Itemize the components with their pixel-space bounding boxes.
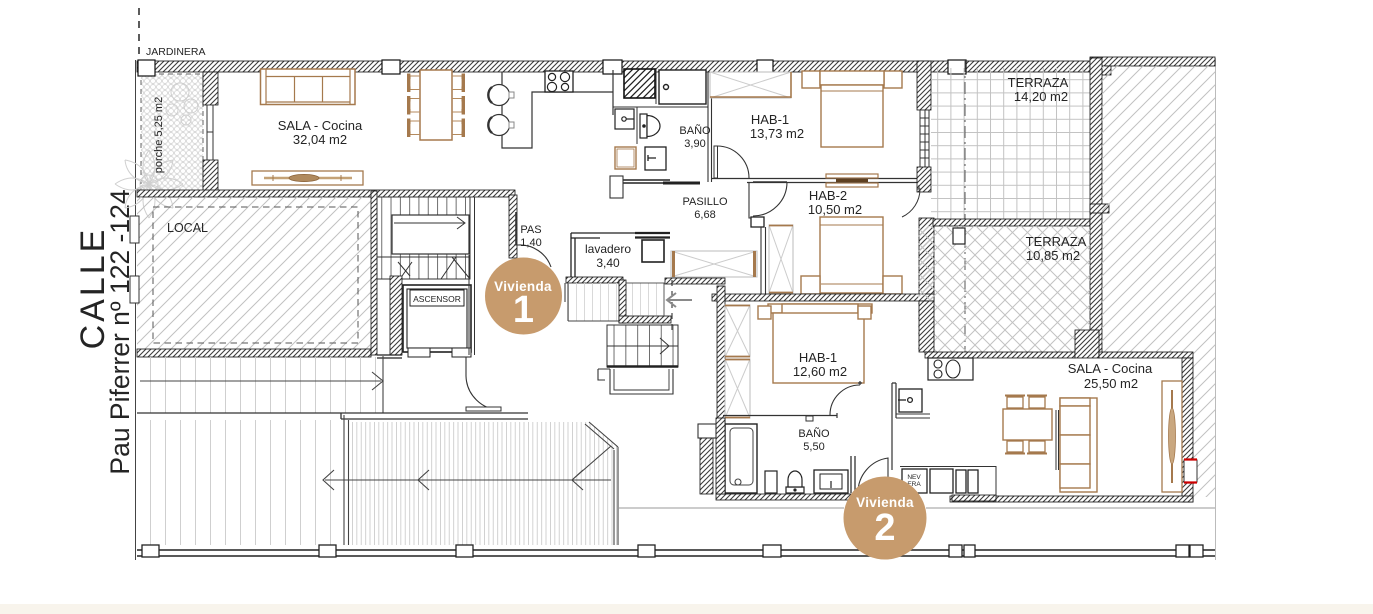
svg-text:14,20 m2: 14,20 m2 <box>1014 89 1068 104</box>
svg-text:32,04 m2: 32,04 m2 <box>293 132 347 147</box>
svg-text:porche 5,25 m2: porche 5,25 m2 <box>153 97 165 173</box>
svg-text:NEV: NEV <box>907 474 921 481</box>
svg-text:PAS: PAS <box>520 224 541 236</box>
svg-text:SALA - Cocina: SALA - Cocina <box>278 118 363 133</box>
svg-text:10,50 m2: 10,50 m2 <box>808 202 862 217</box>
svg-text:1,40: 1,40 <box>520 237 541 249</box>
svg-text:10,85 m2: 10,85 m2 <box>1026 248 1080 263</box>
svg-text:13,73 m2: 13,73 m2 <box>750 126 804 141</box>
svg-text:PASILLO: PASILLO <box>682 196 727 208</box>
svg-text:3,40: 3,40 <box>596 256 620 270</box>
svg-text:TERRAZA: TERRAZA <box>1026 234 1087 249</box>
svg-text:BAÑO: BAÑO <box>798 427 830 440</box>
svg-text:1: 1 <box>513 289 534 331</box>
svg-text:ASCENSOR: ASCENSOR <box>413 294 461 304</box>
svg-text:5,50: 5,50 <box>803 441 824 453</box>
svg-text:JARDINERA: JARDINERA <box>146 46 206 58</box>
svg-text:BAÑO: BAÑO <box>679 124 711 137</box>
svg-text:HAB-1: HAB-1 <box>751 112 789 127</box>
svg-text:HAB-1: HAB-1 <box>799 350 837 365</box>
svg-text:2: 2 <box>874 507 895 549</box>
svg-text:SALA - Cocina: SALA - Cocina <box>1068 361 1153 376</box>
svg-text:12,60 m2: 12,60 m2 <box>793 364 847 379</box>
svg-text:LOCAL: LOCAL <box>167 221 208 235</box>
svg-text:3,90: 3,90 <box>684 138 705 150</box>
svg-text:6,68: 6,68 <box>694 209 715 221</box>
svg-text:TERRAZA: TERRAZA <box>1008 75 1069 90</box>
svg-text:25,50 m2: 25,50 m2 <box>1084 376 1138 391</box>
svg-text:HAB-2: HAB-2 <box>809 188 847 203</box>
svg-text:lavadero: lavadero <box>585 242 631 256</box>
